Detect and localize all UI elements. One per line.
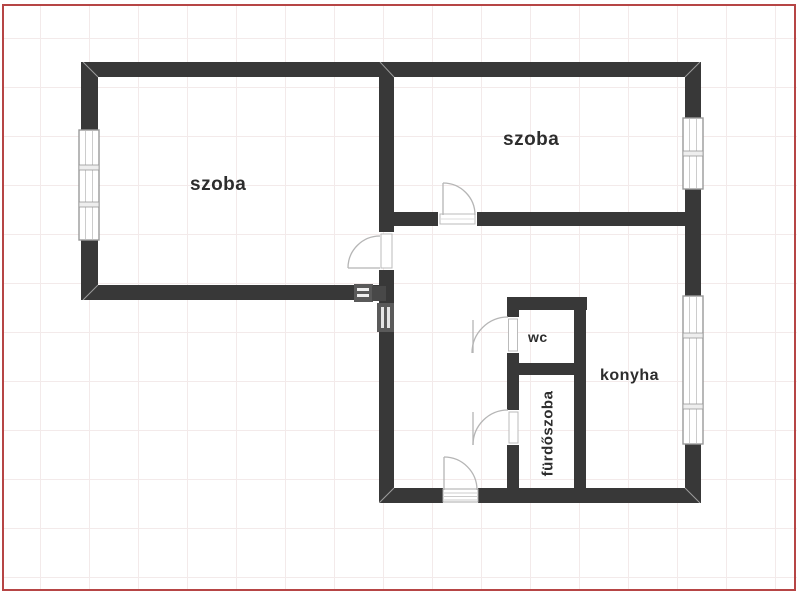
window-kitchen — [683, 296, 703, 444]
door-entry — [443, 457, 478, 502]
window-left-bedroom — [79, 130, 99, 240]
room-label-right-bedroom: szoba — [503, 129, 559, 151]
room-label-kitchen: konyha — [600, 367, 659, 385]
room-label-bathroom: fürdőszoba — [540, 384, 557, 484]
room-label-left-bedroom: szoba — [190, 174, 246, 196]
floorplan-canvas: szoba szoba wc fürdőszoba konyha — [0, 0, 800, 600]
floorplan-drawing — [0, 0, 800, 600]
room-label-wc: wc — [528, 329, 548, 345]
door-wc — [472, 317, 518, 353]
window-right-bedroom — [683, 118, 703, 189]
door-left-bedroom — [348, 234, 392, 268]
door-bathroom — [473, 410, 518, 445]
door-right-bedroom — [440, 183, 475, 224]
